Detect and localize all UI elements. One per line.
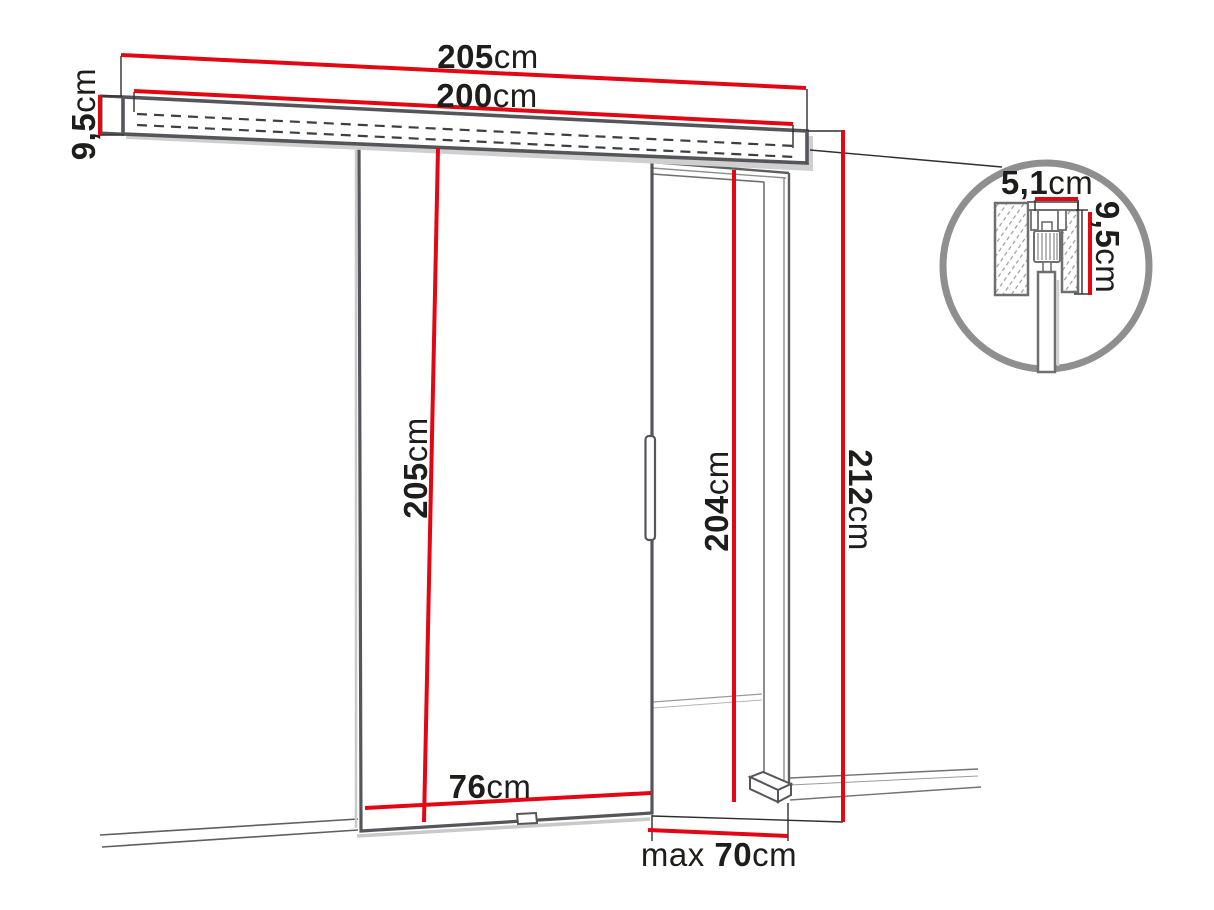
wall-skirting-right — [790, 769, 981, 800]
label-detail-track-height: 9,5cm — [1089, 201, 1126, 293]
label-overall-height: 212cm — [842, 449, 879, 551]
diagram-canvas: 205cm 200cm 9,5cm 205cm 204cm 212cm 76cm… — [0, 0, 1214, 910]
skirting-behind-opening — [653, 694, 762, 708]
door-handle — [646, 436, 656, 540]
detail-leader-line — [810, 150, 1002, 167]
label-max-opening-width: max 70cm — [641, 836, 797, 873]
label-door-width: 76cm — [449, 768, 532, 805]
rail-end-cap-left — [101, 96, 123, 134]
label-rail-total-width: 205cm — [437, 38, 539, 75]
frame-threshold-foot — [750, 772, 791, 802]
label-passage-height: 204cm — [698, 450, 735, 552]
wall-skirting-left — [100, 819, 358, 847]
sliding-door-diagram: 205cm 200cm 9,5cm 205cm 204cm 212cm 76cm… — [0, 0, 1214, 910]
door-section-bar — [1038, 272, 1055, 372]
label-rail-height: 9,5cm — [65, 68, 102, 160]
label-rail-track-width: 200cm — [436, 77, 538, 114]
wall-section-hatch-left — [995, 203, 1028, 295]
label-detail-track-depth: 5,1cm — [1001, 164, 1093, 201]
label-door-height: 205cm — [397, 417, 434, 519]
floor-guide — [517, 813, 537, 824]
